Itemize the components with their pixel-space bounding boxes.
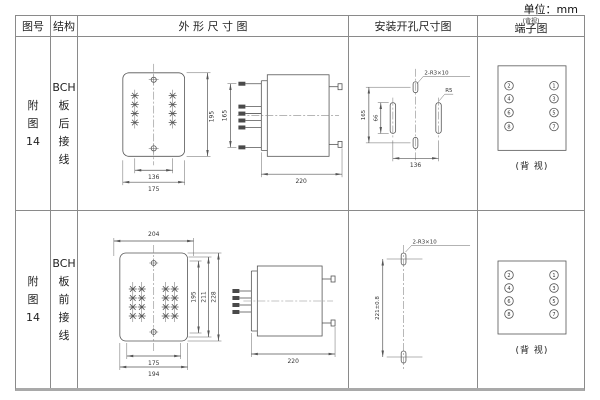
dim-side-depth: 220 bbox=[288, 358, 300, 365]
svg-text:7: 7 bbox=[552, 312, 555, 318]
row1-terminal-pins: 2 4 6 8 1 3 5 7 bbox=[505, 81, 559, 130]
header-mounting: 安装开孔尺寸图 bbox=[349, 16, 478, 37]
row1-terminal-svg: 2 4 6 8 1 3 5 7 (背 视) bbox=[478, 37, 584, 210]
dim-mount-height: 221±0.8 bbox=[375, 296, 381, 320]
svg-text:8: 8 bbox=[507, 312, 510, 318]
manual-page: { "page": { "unit_label": "单位：mm" }, "he… bbox=[0, 0, 600, 400]
row2-terminal-pins: 2 4 6 8 1 3 5 7 bbox=[505, 271, 559, 319]
label-slot-spec: 2-R3×10 bbox=[413, 239, 438, 245]
header-structure: 结构 bbox=[51, 16, 78, 37]
row2-terminal-caption: (背 视) bbox=[516, 344, 549, 356]
row1-outline-svg: 195 136 175 bbox=[78, 37, 348, 210]
dim-front-height: 195 bbox=[208, 111, 215, 123]
row1-mounting-svg: 165 66 136 2-R3×10 R5 bbox=[349, 37, 477, 210]
svg-text:1: 1 bbox=[552, 84, 555, 90]
row2-terminal-drawing: 2 4 6 8 1 3 5 7 (背 视) bbox=[478, 211, 584, 388]
row1-outline-drawing: 195 136 175 bbox=[78, 37, 349, 211]
svg-text:3: 3 bbox=[552, 96, 555, 102]
dim-height-outer: 228 bbox=[211, 291, 218, 303]
svg-text:7: 7 bbox=[552, 124, 555, 130]
label-slot-spec: 2-R3×10 bbox=[424, 70, 449, 76]
header-terminal: (背视) 端子图 bbox=[478, 16, 584, 37]
svg-text:2: 2 bbox=[507, 273, 510, 279]
svg-text:5: 5 bbox=[552, 110, 555, 116]
dim-slot-length: 66 bbox=[373, 114, 379, 121]
row2-terminal-svg: 2 4 6 8 1 3 5 7 (背 视) bbox=[478, 211, 584, 388]
row2-mounting-drawing: 221±0.8 2-R3×10 bbox=[349, 211, 478, 388]
svg-text:4: 4 bbox=[507, 286, 510, 292]
row2-front-view: 204 175 194 195 211 bbox=[114, 231, 222, 378]
svg-text:1: 1 bbox=[552, 273, 555, 279]
row2-outline-svg: 204 175 194 195 211 bbox=[78, 211, 348, 388]
dim-front-width-inner: 175 bbox=[148, 360, 160, 367]
dim-mount-height: 165 bbox=[361, 110, 367, 120]
svg-text:3: 3 bbox=[552, 286, 555, 292]
dim-side-depth: 220 bbox=[295, 178, 307, 185]
header-figure-no: 图号 bbox=[16, 16, 51, 37]
row1-structure: BCH 板 后 接 线 bbox=[51, 37, 78, 211]
svg-text:2: 2 bbox=[507, 84, 510, 90]
svg-text:8: 8 bbox=[507, 124, 510, 130]
dim-mount-width: 136 bbox=[410, 162, 422, 169]
svg-text:4: 4 bbox=[507, 96, 510, 102]
row1-mounting-drawing: 165 66 136 2-R3×10 R5 bbox=[349, 37, 478, 211]
dim-side-height: 165 bbox=[221, 110, 228, 122]
dim-height-inner: 195 bbox=[191, 291, 198, 303]
dim-top-width: 204 bbox=[148, 231, 160, 238]
row1-side-view: 165 220 bbox=[221, 75, 342, 185]
svg-text:5: 5 bbox=[552, 299, 555, 305]
row2-figure-no: 附 图 14 bbox=[16, 211, 51, 388]
dim-front-width-inner: 136 bbox=[148, 174, 160, 181]
spec-table: 图号 结构 外 形 尺 寸 图 安装开孔尺寸图 (背视) 端子图 附 图 14 … bbox=[15, 15, 585, 391]
svg-text:6: 6 bbox=[507, 299, 510, 305]
label-corner-radius: R5 bbox=[445, 88, 452, 94]
header-terminal-label: 端子图 bbox=[515, 23, 548, 34]
row1-figure-no: 附 图 14 bbox=[16, 37, 51, 211]
row1-terminal-drawing: 2 4 6 8 1 3 5 7 (背 视) bbox=[478, 37, 584, 211]
row2-outline-drawing: 204 175 194 195 211 bbox=[78, 211, 349, 388]
dim-front-width-outer: 194 bbox=[148, 371, 160, 378]
svg-text:6: 6 bbox=[507, 110, 510, 116]
dim-height-mid: 211 bbox=[201, 291, 208, 303]
row1-front-view: 195 136 175 bbox=[123, 64, 216, 193]
header-outline: 外 形 尺 寸 图 bbox=[78, 16, 349, 37]
row2-structure: BCH 板 前 接 线 bbox=[51, 211, 78, 388]
row2-side-view: 220 bbox=[232, 266, 335, 365]
row1-terminal-caption: (背 视) bbox=[516, 160, 549, 172]
dim-front-width-outer: 175 bbox=[148, 186, 160, 193]
row2-mounting-svg: 221±0.8 2-R3×10 bbox=[349, 211, 477, 388]
